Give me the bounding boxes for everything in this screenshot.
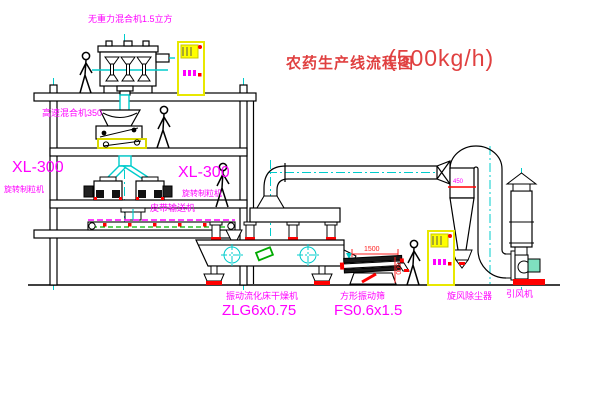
- person-figure: [157, 106, 170, 148]
- dim-screen-length: 1500: [364, 246, 380, 253]
- label-granulator-left-model: XL-300: [12, 160, 64, 176]
- high-speed-mixer: [96, 110, 146, 148]
- granulator-right: [136, 177, 172, 200]
- dim-screen-width: 600: [394, 263, 401, 275]
- feed-pipe: [120, 95, 129, 111]
- exhaust-stack: [507, 173, 536, 255]
- label-belt-conveyor: 皮带输送机: [150, 204, 195, 213]
- person-figure: [407, 240, 420, 285]
- induced-draft-fan: [513, 255, 545, 285]
- diagram-title-capacity: (500kg/h): [388, 45, 494, 72]
- label-dryer-name: 振动流化床干燥机: [226, 292, 298, 301]
- label-granulator-left-name: 旋转制粒机: [4, 186, 44, 194]
- control-cabinet-2: [428, 231, 454, 285]
- label-granulator-right-model: XL-300: [178, 165, 230, 181]
- cyclone-dust-collector: [448, 146, 502, 268]
- discharge-chute: [121, 208, 145, 220]
- label-cyclone: 旋风除尘器: [447, 292, 492, 301]
- label-screen-name: 方形振动筛: [340, 292, 385, 301]
- label-dryer-model: ZLG6x0.75: [222, 303, 296, 318]
- dryer-hood: [250, 208, 340, 222]
- label-gravity-mixer: 无重力混合机1.5立方: [88, 15, 173, 24]
- fan-duct-stack: [478, 169, 545, 285]
- label-fan: 引风机: [506, 290, 533, 299]
- label-high-speed-mixer: 高速混合机350: [42, 109, 102, 118]
- label-screen-model: FS0.6x1.5: [334, 303, 402, 318]
- control-cabinet-1: [178, 42, 204, 95]
- process-flow-diagram: 农药生产线流程图 (500kg/h) 无重力混合机1.5立方 高速混合机350 …: [0, 0, 600, 403]
- granulator-left: [84, 177, 122, 200]
- dim-cyclone-inlet: 450: [453, 179, 463, 185]
- label-granulator-right-name: 旋转制粒机: [182, 190, 222, 198]
- exhaust-duct: [264, 161, 450, 196]
- person-figure: [80, 52, 92, 93]
- fluid-bed-dryer: [196, 196, 356, 285]
- dryer-feet: [204, 266, 332, 285]
